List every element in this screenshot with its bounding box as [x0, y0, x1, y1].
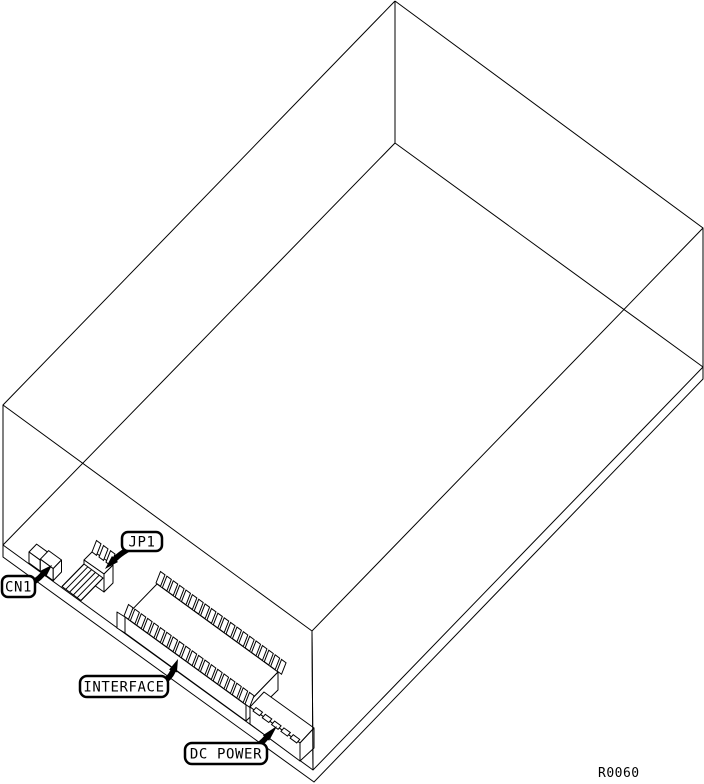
callout-jp1: JP1 [105, 532, 162, 569]
connectors [29, 541, 314, 762]
jp1-label: JP1 [128, 535, 155, 551]
cn1-label: CN1 [5, 580, 32, 596]
hardware-isometric-diagram: CN1 JP1 INTERFACE DC POWER R0060 [0, 0, 704, 784]
callout-cn1: CN1 [2, 565, 52, 597]
pin-glyph [99, 546, 108, 561]
dc-power-label: DC POWER [190, 747, 262, 763]
figure-reference: R0060 [598, 766, 640, 781]
enclosure-edges [3, 1, 703, 770]
jp1-jumper [62, 541, 115, 601]
callout-interface: INTERFACE [80, 659, 178, 697]
enclosure-wireframe [3, 1, 703, 782]
interface-label: INTERFACE [83, 680, 164, 696]
diagram-canvas: CN1 JP1 INTERFACE DC POWER R0060 [0, 0, 704, 784]
pin-glyph [92, 541, 101, 556]
